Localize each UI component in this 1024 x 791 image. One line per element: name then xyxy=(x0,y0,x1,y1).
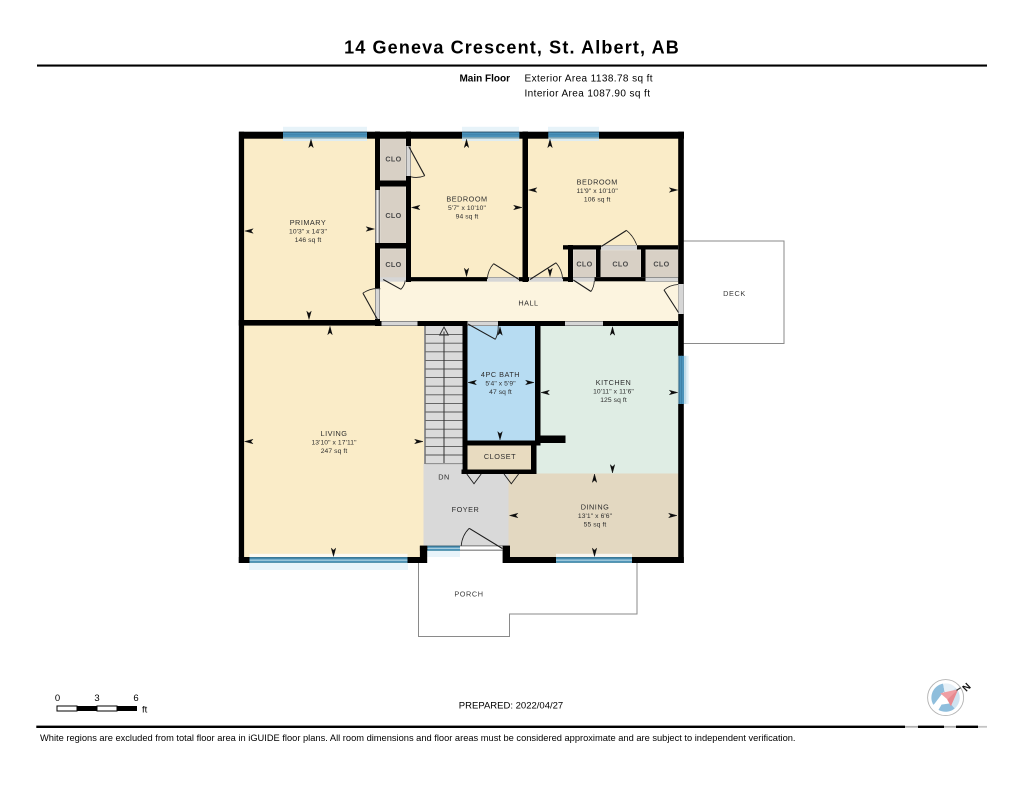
svg-text:CLO: CLO xyxy=(576,260,592,269)
svg-text:146 sq ft: 146 sq ft xyxy=(295,237,322,244)
svg-text:CLOSET: CLOSET xyxy=(484,452,516,461)
svg-text:BEDROOM: BEDROOM xyxy=(446,195,487,204)
svg-text:55 sq ft: 55 sq ft xyxy=(584,522,607,529)
svg-text:106 sq ft: 106 sq ft xyxy=(584,197,611,204)
svg-text:DECK: DECK xyxy=(723,289,746,298)
svg-text:5'7" x 10'10": 5'7" x 10'10" xyxy=(448,205,487,212)
svg-text:HALL: HALL xyxy=(518,299,538,308)
svg-text:CLO: CLO xyxy=(612,260,628,269)
svg-text:14 Geneva Crescent, St. Albert: 14 Geneva Crescent, St. Albert, AB xyxy=(344,38,680,58)
svg-text:4PC BATH: 4PC BATH xyxy=(481,370,520,379)
svg-text:0: 0 xyxy=(55,693,60,704)
svg-text:11'9" x 10'10": 11'9" x 10'10" xyxy=(577,188,619,195)
svg-text:CLO: CLO xyxy=(653,260,669,269)
svg-text:CLO: CLO xyxy=(385,155,401,164)
svg-text:DINING: DINING xyxy=(581,503,610,512)
svg-text:LIVING: LIVING xyxy=(321,429,348,438)
svg-text:Exterior Area 1138.78 sq ft: Exterior Area 1138.78 sq ft xyxy=(525,74,653,85)
svg-text:Main Floor: Main Floor xyxy=(459,74,510,85)
svg-text:CLO: CLO xyxy=(385,211,401,220)
svg-text:5'4" x 5'9": 5'4" x 5'9" xyxy=(485,381,516,388)
svg-text:FOYER: FOYER xyxy=(452,505,480,514)
svg-text:13'10" x 17'11": 13'10" x 17'11" xyxy=(311,440,357,447)
svg-text:KITCHEN: KITCHEN xyxy=(596,378,632,387)
svg-text:10'3" x 14'3": 10'3" x 14'3" xyxy=(289,229,328,236)
svg-text:CLO: CLO xyxy=(385,260,401,269)
svg-text:6: 6 xyxy=(133,693,138,704)
svg-text:10'11" x 11'6": 10'11" x 11'6" xyxy=(593,389,634,396)
svg-text:47 sq ft: 47 sq ft xyxy=(489,389,512,396)
svg-text:White regions are excluded fro: White regions are excluded from total fl… xyxy=(40,733,796,743)
svg-text:3: 3 xyxy=(94,693,99,704)
svg-text:PREPARED: 2022/04/27: PREPARED: 2022/04/27 xyxy=(459,701,563,712)
svg-text:13'1" x 6'6": 13'1" x 6'6" xyxy=(578,513,613,520)
svg-text:PRIMARY: PRIMARY xyxy=(290,218,327,227)
svg-text:247 sq ft: 247 sq ft xyxy=(321,448,348,455)
svg-text:Interior Area 1087.90 sq ft: Interior Area 1087.90 sq ft xyxy=(525,89,651,100)
svg-text:125 sq ft: 125 sq ft xyxy=(600,397,627,404)
svg-text:ft: ft xyxy=(142,705,148,716)
svg-text:PORCH: PORCH xyxy=(454,590,483,599)
svg-text:94 sq ft: 94 sq ft xyxy=(456,214,479,221)
svg-text:DN: DN xyxy=(438,473,450,482)
svg-text:BEDROOM: BEDROOM xyxy=(577,177,618,186)
